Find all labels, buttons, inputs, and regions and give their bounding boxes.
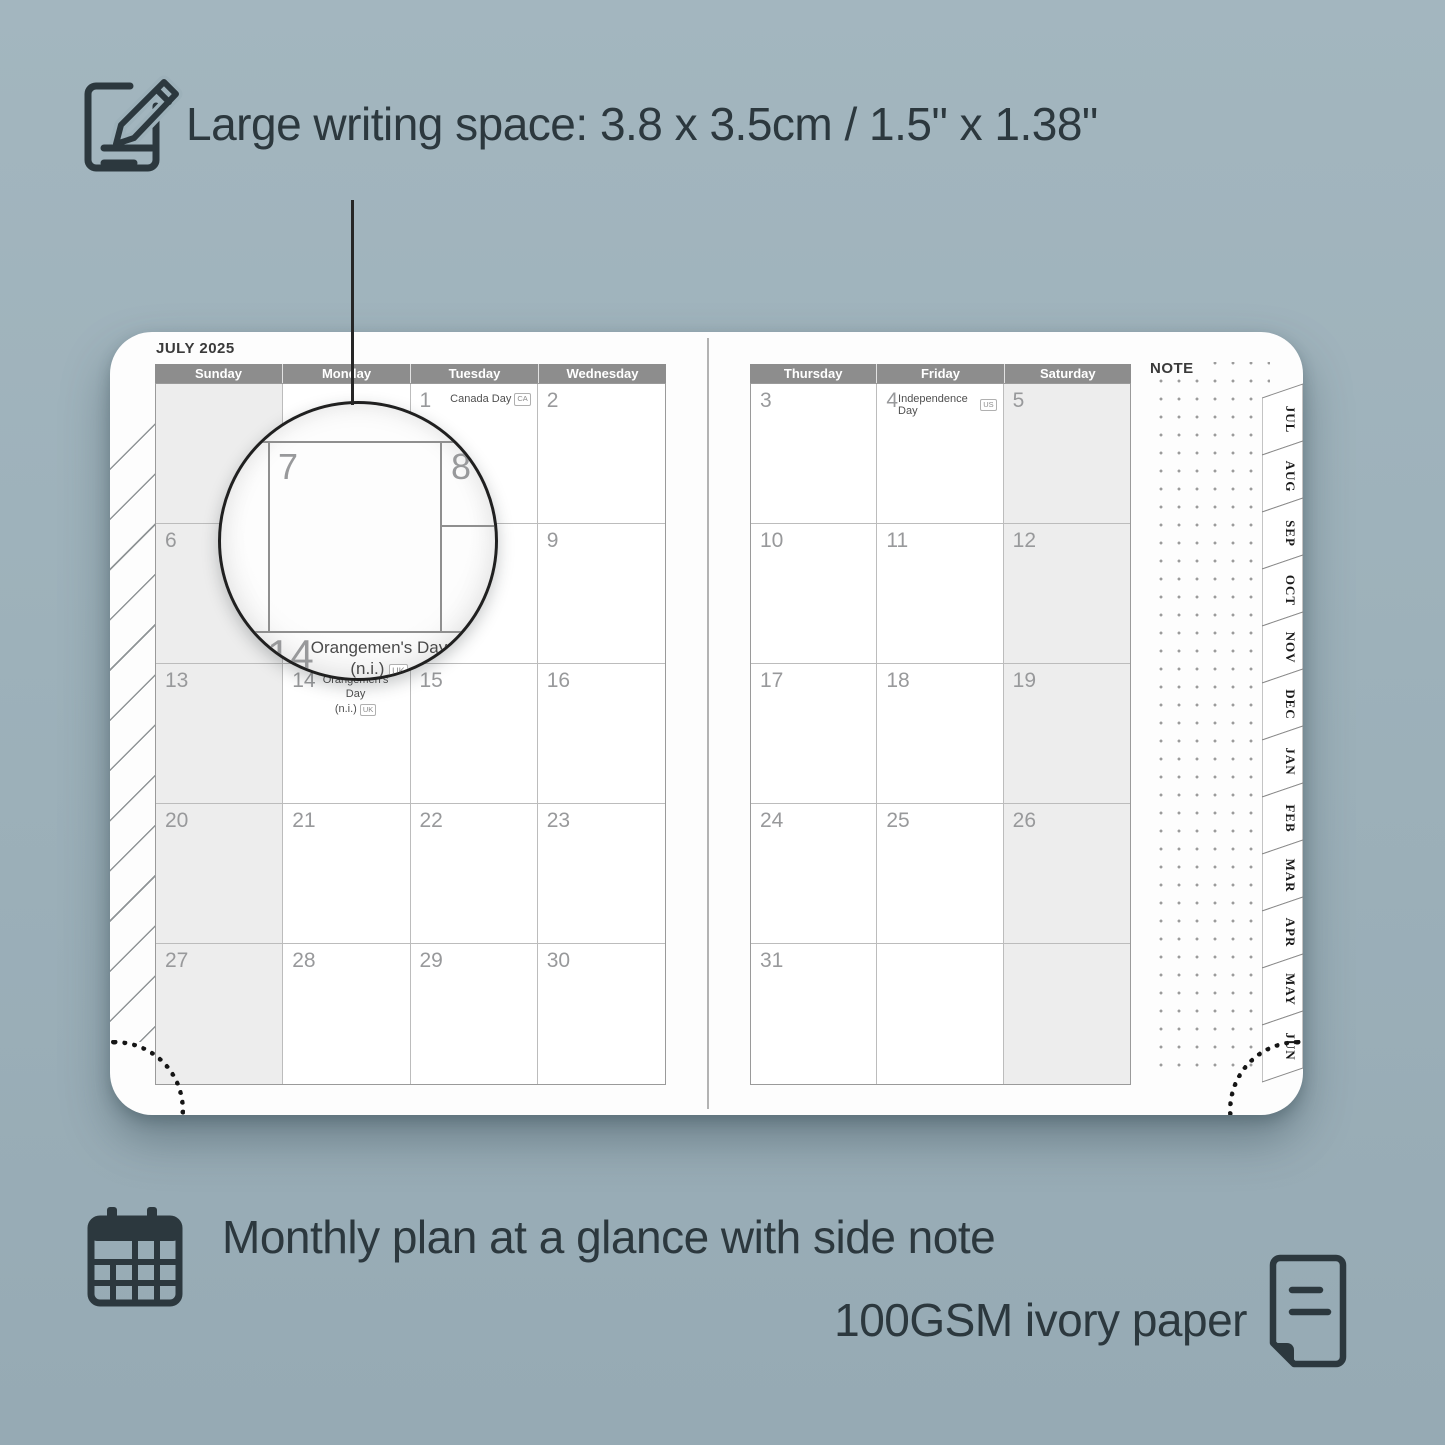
paper-sheet-icon	[1262, 1252, 1348, 1370]
day-cell: 12	[1004, 524, 1130, 664]
feature-heading-paper: 100GSM ivory paper	[0, 1295, 1247, 1345]
day-cell: 3	[751, 384, 877, 524]
country-badge: UK	[360, 704, 376, 717]
day-header: Saturday	[1004, 364, 1131, 383]
tab-dec: DEC	[1283, 689, 1298, 719]
month-title: JULY 2025	[156, 340, 235, 357]
day-cell: 27	[156, 944, 283, 1084]
day-cell: 24	[751, 804, 877, 944]
product-image: Large writing space: 3.8 x 3.5cm / 1.5" …	[0, 0, 1445, 1445]
holiday-label: Independence DayUS	[898, 390, 997, 417]
day-cell: 19	[1004, 664, 1130, 804]
note-dot-grid: NOTE	[1148, 362, 1270, 1080]
day-header: Sunday	[155, 364, 282, 383]
note-label: NOTE	[1150, 360, 1201, 377]
day-header: Friday	[876, 364, 1003, 383]
day-cell: 20	[156, 804, 283, 944]
tab-nov: NOV	[1283, 632, 1298, 664]
tab-sep: SEP	[1283, 520, 1298, 547]
magnifier-circle: 7 8 14 Orangemen's Day (n.i.) UK	[218, 401, 498, 681]
day-cell: 26	[1004, 804, 1130, 944]
day-header: Wednesday	[538, 364, 666, 383]
day-cell: 25	[877, 804, 1003, 944]
day-cell: 9	[538, 524, 665, 664]
tab-jan: JAN	[1283, 747, 1298, 775]
tab-mar: MAR	[1283, 858, 1298, 892]
day-header: Tuesday	[410, 364, 538, 383]
magnified-day-8: 8	[451, 449, 471, 485]
tab-apr: APR	[1283, 918, 1298, 948]
magnified-holiday-label: Orangemen's Day (n.i.) UK	[299, 637, 459, 680]
calendar-icon	[83, 1203, 187, 1309]
tab-feb: FEB	[1283, 804, 1298, 832]
month-tabs: JUL AUG SEP OCT NOV DEC JAN FEB MAR APR …	[1262, 372, 1303, 1092]
pointer-line	[351, 200, 354, 405]
day-cell: 5	[1004, 384, 1130, 524]
day-cell	[1004, 944, 1130, 1084]
spine-fold-line	[707, 338, 709, 1109]
country-badge: CA	[514, 393, 530, 406]
day-cell: 13	[156, 664, 283, 804]
day-header: Monday	[282, 364, 410, 383]
day-cell: 23	[538, 804, 665, 944]
day-cell: 16	[538, 664, 665, 804]
day-header-row-right: Thursday Friday Saturday	[750, 364, 1131, 383]
tab-may: MAY	[1283, 973, 1298, 1006]
day-cell: 30	[538, 944, 665, 1084]
tab-aug: AUG	[1283, 461, 1298, 493]
day-cell	[877, 944, 1003, 1084]
day-cell: 14 Orangemen's Day (n.i.) UK	[283, 664, 410, 804]
feature-heading-monthly-plan: Monthly plan at a glance with side note	[222, 1212, 995, 1262]
tab-oct: OCT	[1283, 575, 1298, 606]
day-cell: 17	[751, 664, 877, 804]
day-cell: 31	[751, 944, 877, 1084]
country-badge: UK	[389, 664, 408, 679]
day-header: Thursday	[750, 364, 876, 383]
day-cell: 10	[751, 524, 877, 664]
day-cell: 29	[411, 944, 538, 1084]
holiday-label: Canada DayCA	[450, 390, 531, 406]
day-cell: 15	[411, 664, 538, 804]
day-cell: 11	[877, 524, 1003, 664]
day-header-row-left: Sunday Monday Tuesday Wednesday	[155, 364, 666, 383]
day-cell: 21	[283, 804, 410, 944]
day-cell: 28	[283, 944, 410, 1084]
day-cell: 18	[877, 664, 1003, 804]
day-cell: 2	[538, 384, 665, 524]
day-cell: 22	[411, 804, 538, 944]
feature-heading-writing-space: Large writing space: 3.8 x 3.5cm / 1.5" …	[186, 99, 1098, 149]
tab-jul: JUL	[1283, 406, 1298, 434]
country-badge: US	[980, 399, 996, 412]
calendar-grid-right: 3 4 Independence DayUS 5 10 11 12 17 18 …	[750, 383, 1131, 1085]
magnified-day-7: 7	[278, 449, 298, 485]
day-cell: 4 Independence DayUS	[877, 384, 1003, 524]
writing-note-icon	[78, 72, 184, 178]
page-edge-hatching	[110, 420, 156, 1042]
